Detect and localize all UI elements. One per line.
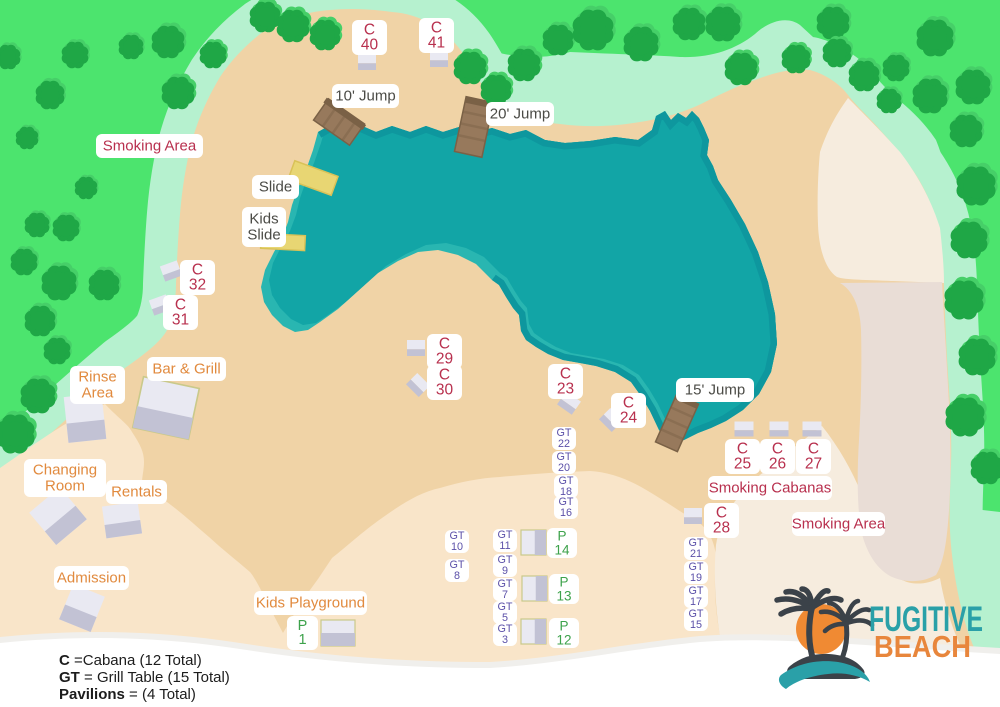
svg-text:Kids Playground: Kids Playground bbox=[256, 595, 365, 612]
svg-text:Rentals: Rentals bbox=[111, 484, 162, 501]
svg-text:GT = Grill Table (15 Total): GT = Grill Table (15 Total) bbox=[59, 669, 230, 686]
svg-text:11: 11 bbox=[499, 540, 510, 552]
svg-text:Area: Area bbox=[82, 385, 114, 402]
svg-text:13: 13 bbox=[556, 588, 571, 603]
svg-text:15: 15 bbox=[690, 619, 702, 631]
svg-text:41: 41 bbox=[428, 35, 445, 52]
svg-text:21: 21 bbox=[690, 548, 702, 560]
svg-text:C =Cabana (12 Total): C =Cabana (12 Total) bbox=[59, 652, 202, 669]
svg-text:8: 8 bbox=[454, 570, 460, 582]
svg-text:3: 3 bbox=[502, 634, 508, 646]
svg-text:Admission: Admission bbox=[57, 570, 126, 587]
svg-text:14: 14 bbox=[554, 542, 570, 557]
svg-text:28: 28 bbox=[713, 520, 730, 537]
svg-text:16: 16 bbox=[560, 507, 572, 519]
svg-text:26: 26 bbox=[769, 456, 786, 473]
svg-text:1: 1 bbox=[298, 632, 306, 648]
svg-text:31: 31 bbox=[172, 312, 189, 329]
svg-text:40: 40 bbox=[361, 37, 379, 54]
svg-text:19: 19 bbox=[690, 572, 702, 584]
svg-text:17: 17 bbox=[690, 596, 702, 608]
svg-text:Bar & Grill: Bar & Grill bbox=[152, 361, 220, 378]
svg-text:23: 23 bbox=[557, 381, 574, 398]
svg-text:24: 24 bbox=[620, 410, 638, 427]
svg-text:22: 22 bbox=[558, 438, 570, 450]
svg-text:Slide: Slide bbox=[247, 227, 280, 244]
svg-text:Smoking Cabanas: Smoking Cabanas bbox=[709, 480, 832, 497]
svg-text:Smoking Area: Smoking Area bbox=[103, 138, 197, 155]
svg-text:Pavilions = (4 Total): Pavilions = (4 Total) bbox=[59, 686, 196, 703]
svg-text:27: 27 bbox=[805, 456, 822, 473]
svg-text:Slide: Slide bbox=[259, 179, 292, 196]
svg-text:30: 30 bbox=[436, 382, 454, 399]
svg-text:Room: Room bbox=[45, 478, 85, 495]
svg-text:Changing: Changing bbox=[33, 462, 97, 479]
svg-text:20: 20 bbox=[558, 462, 570, 474]
svg-text:Rinse: Rinse bbox=[78, 369, 116, 386]
svg-text:10: 10 bbox=[451, 541, 463, 553]
svg-text:25: 25 bbox=[734, 456, 751, 473]
svg-text:12: 12 bbox=[556, 632, 571, 647]
svg-text:Smoking Area: Smoking Area bbox=[792, 516, 886, 533]
svg-text:Kids: Kids bbox=[249, 211, 278, 228]
svg-text:20' Jump: 20' Jump bbox=[490, 106, 550, 123]
svg-text:15' Jump: 15' Jump bbox=[685, 382, 745, 399]
svg-text:BEACH: BEACH bbox=[874, 629, 971, 664]
svg-text:32: 32 bbox=[189, 277, 206, 294]
svg-text:10' Jump: 10' Jump bbox=[335, 88, 395, 105]
svg-text:7: 7 bbox=[502, 589, 508, 601]
svg-text:9: 9 bbox=[502, 565, 508, 577]
svg-text:5: 5 bbox=[502, 612, 508, 624]
